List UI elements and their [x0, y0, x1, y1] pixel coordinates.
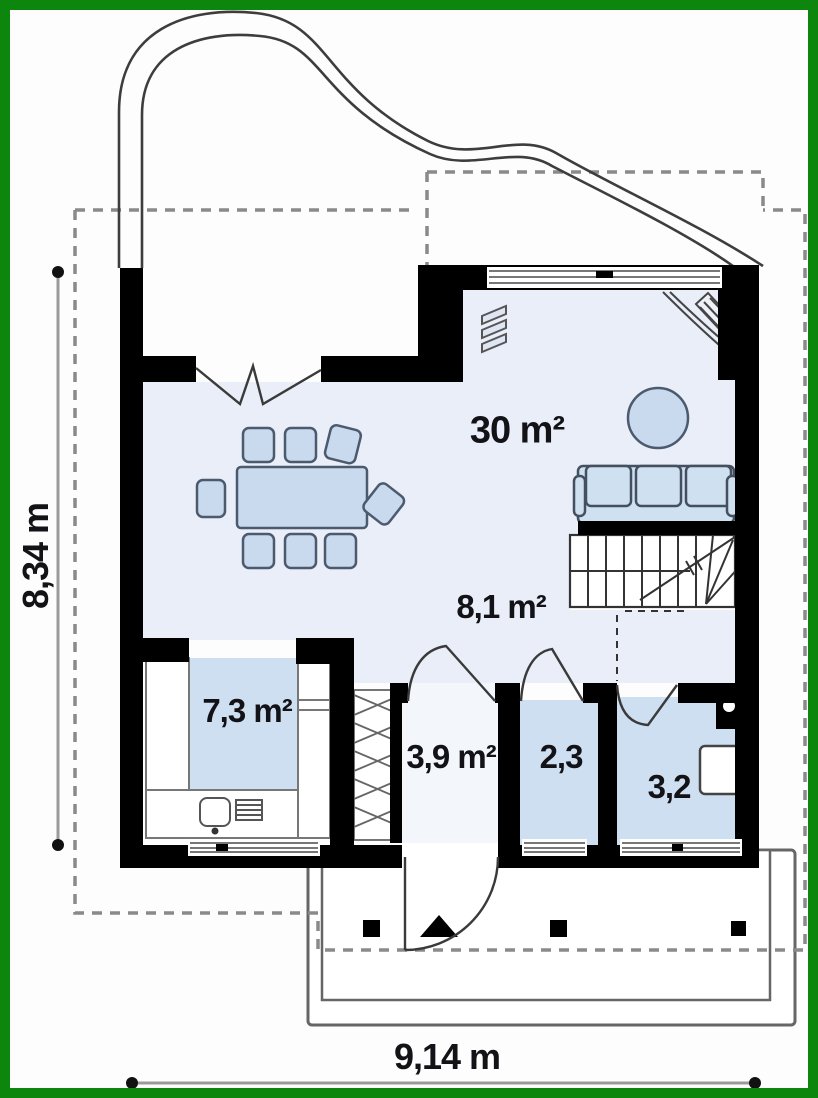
- dining-chair: [243, 534, 274, 568]
- wc-window: [522, 839, 587, 856]
- entry-door-opening: [402, 843, 498, 870]
- floor-plan-canvas: [0, 0, 818, 1098]
- dining-chair: [285, 534, 316, 568]
- kitchen-faucet-icon: [212, 828, 219, 835]
- porch-post: [363, 920, 380, 937]
- room-label-kitchen: 7,3 m²: [202, 692, 291, 730]
- dining-chair: [325, 534, 356, 568]
- curved-canopy-edge: [119, 12, 763, 268]
- floor-plan: 30 m² 8,1 m² 7,3 m² 3,9 m² 2,3 3,2 9,14 …: [0, 0, 818, 1098]
- dining-chair: [285, 428, 316, 462]
- sofa-cushion: [586, 466, 631, 506]
- sofa: [574, 466, 738, 523]
- dining-chair: [197, 480, 225, 517]
- sofa-cushion: [686, 466, 731, 506]
- dining-chair: [243, 428, 274, 462]
- room-label-vestibule: 3,9 m²: [406, 738, 495, 776]
- room-label-wc: 2,3: [540, 738, 583, 776]
- sofa-armrest: [574, 476, 585, 516]
- porch-post: [731, 921, 746, 936]
- kitchen-stove-icon: [236, 800, 262, 820]
- room-label-living: 30 m²: [470, 410, 564, 453]
- kitchen-window: [188, 839, 320, 856]
- kitchen-sink-icon: [200, 798, 230, 826]
- porch-post: [550, 920, 567, 937]
- bathroom-window: [620, 839, 742, 856]
- dining-table: [237, 467, 367, 528]
- sofa-cushion: [636, 466, 681, 506]
- width-dimension-line: [126, 1077, 761, 1089]
- room-label-bath: 3,2: [648, 768, 691, 806]
- living-room-window: [487, 267, 722, 288]
- kitchen-tall-cabinet: [298, 662, 330, 838]
- entrance-porch: [308, 850, 795, 1025]
- dining-chair: [324, 424, 362, 464]
- dimension-label-width: 9,14 m: [394, 1036, 500, 1078]
- round-side-table: [628, 388, 688, 448]
- dimension-label-depth: 8,34 m: [15, 503, 57, 609]
- porch-inner-slab: [322, 850, 770, 1000]
- room-label-hall: 8,1 m²: [456, 588, 545, 626]
